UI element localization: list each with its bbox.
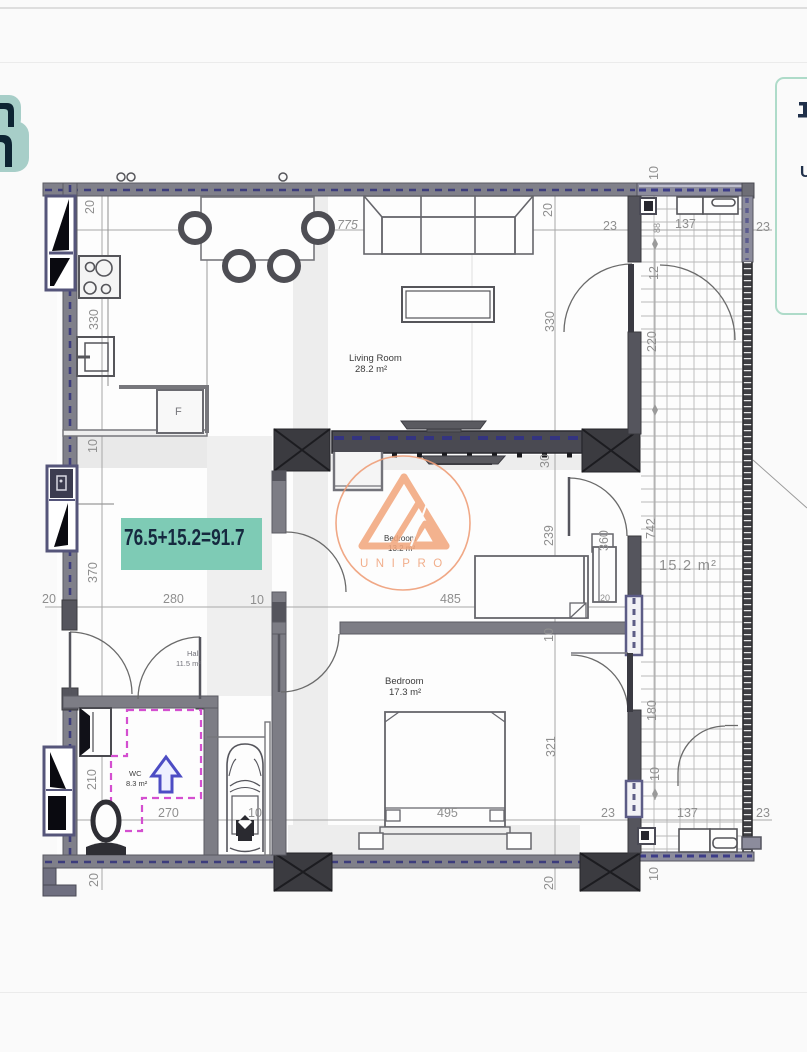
svg-text:88: 88 <box>652 223 662 233</box>
svg-text:28.2 m²: 28.2 m² <box>355 364 387 375</box>
svg-text:WC: WC <box>129 769 142 778</box>
svg-text:137: 137 <box>675 217 696 231</box>
svg-text:330: 330 <box>543 311 557 332</box>
svg-text:20: 20 <box>83 200 97 214</box>
svg-text:370: 370 <box>86 562 100 583</box>
svg-text:180: 180 <box>645 700 659 721</box>
svg-text:280: 280 <box>163 592 184 606</box>
svg-text:10: 10 <box>542 628 556 642</box>
svg-text:495: 495 <box>437 806 458 820</box>
svg-text:20: 20 <box>42 592 56 606</box>
svg-text:Hall: Hall <box>187 649 200 658</box>
svg-text:10: 10 <box>648 767 662 781</box>
svg-text:239: 239 <box>542 525 556 546</box>
svg-text:742: 742 <box>644 518 658 539</box>
svg-text:10: 10 <box>248 806 262 820</box>
svg-text:11.5 m²: 11.5 m² <box>176 659 201 668</box>
svg-text:10: 10 <box>647 867 661 881</box>
svg-text:23: 23 <box>756 220 770 234</box>
svg-text:10: 10 <box>647 166 661 180</box>
svg-text:20: 20 <box>87 873 101 887</box>
svg-text:Bedroom: Bedroom <box>385 676 424 687</box>
svg-text:12: 12 <box>647 266 661 280</box>
svg-text:270: 270 <box>158 806 179 820</box>
svg-text:15.2 m²: 15.2 m² <box>659 558 717 574</box>
svg-text:20: 20 <box>541 203 555 217</box>
svg-text:Living Room: Living Room <box>349 353 402 364</box>
svg-text:76.5+15.2=91.7: 76.5+15.2=91.7 <box>124 526 245 551</box>
svg-text:330: 330 <box>87 309 101 330</box>
svg-text:23: 23 <box>601 806 615 820</box>
svg-text:23: 23 <box>756 806 770 820</box>
svg-text:17.3 m²: 17.3 m² <box>389 687 421 698</box>
svg-text:10: 10 <box>86 439 100 453</box>
svg-text:485: 485 <box>440 592 461 606</box>
svg-text:F: F <box>175 406 182 418</box>
svg-text:10: 10 <box>250 593 264 607</box>
svg-text:210: 210 <box>85 769 99 790</box>
svg-text:20: 20 <box>542 876 556 890</box>
svg-text:360: 360 <box>597 530 611 551</box>
svg-text:U: U <box>800 164 807 181</box>
svg-text:8.3 m²: 8.3 m² <box>126 779 148 788</box>
svg-text:23: 23 <box>603 219 617 233</box>
svg-text:775: 775 <box>337 218 358 232</box>
svg-text:UNIPRO: UNIPRO <box>360 558 450 570</box>
svg-text:137: 137 <box>677 806 698 820</box>
svg-text:20: 20 <box>600 593 610 603</box>
svg-text:220: 220 <box>645 331 659 352</box>
svg-text:321: 321 <box>544 736 558 757</box>
svg-text:30: 30 <box>538 454 552 468</box>
